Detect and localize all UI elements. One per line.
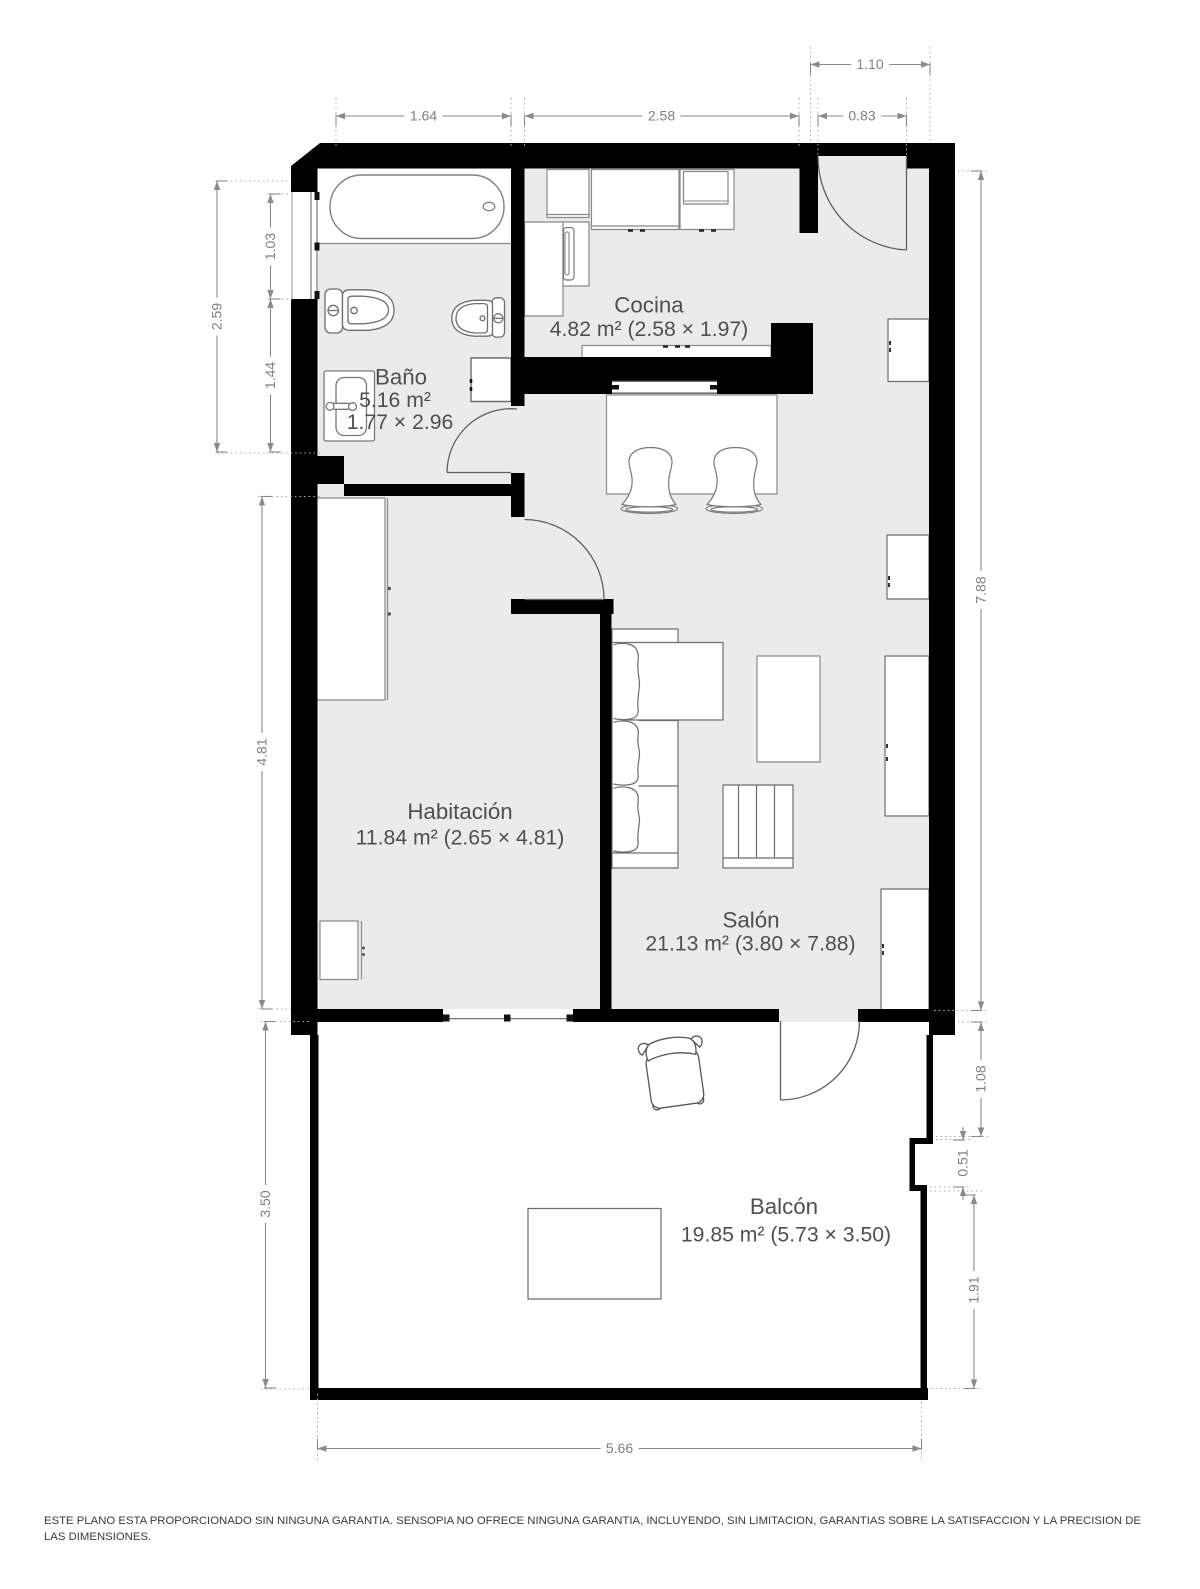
svg-text:2.59: 2.59 [209, 303, 225, 330]
svg-text:Balcón: Balcón [750, 1194, 818, 1219]
svg-text:0.83: 0.83 [848, 108, 875, 124]
svg-text:21.13 m² (3.80 × 7.88): 21.13 m² (3.80 × 7.88) [645, 933, 855, 956]
svg-text:Baño: Baño [375, 365, 427, 390]
svg-text:4.82 m² (2.58 × 1.97): 4.82 m² (2.58 × 1.97) [550, 318, 748, 341]
svg-text:19.85 m² (5.73 × 3.50): 19.85 m² (5.73 × 3.50) [681, 1224, 891, 1247]
svg-text:Cocina: Cocina [614, 293, 684, 318]
svg-text:3.50: 3.50 [257, 1190, 273, 1217]
svg-text:4.81: 4.81 [254, 738, 270, 765]
svg-text:1.64: 1.64 [410, 108, 437, 124]
svg-text:1.08: 1.08 [973, 1065, 989, 1092]
svg-text:11.84 m² (2.65 × 4.81): 11.84 m² (2.65 × 4.81) [356, 827, 565, 850]
svg-text:1.03: 1.03 [262, 233, 278, 260]
svg-text:1.77 × 2.96: 1.77 × 2.96 [347, 411, 454, 434]
svg-text:7.88: 7.88 [973, 576, 989, 603]
svg-text:5.16 m²: 5.16 m² [359, 389, 431, 412]
svg-text:0.51: 0.51 [955, 1149, 971, 1176]
svg-text:5.66: 5.66 [606, 1440, 633, 1456]
svg-text:Salón: Salón [722, 908, 779, 933]
svg-text:ESTE PLANO ESTA PROPORCIONADO: ESTE PLANO ESTA PROPORCIONADO SIN NINGUN… [44, 1515, 1141, 1527]
svg-text:1.10: 1.10 [856, 56, 883, 72]
svg-text:1.44: 1.44 [262, 362, 278, 389]
svg-text:1.91: 1.91 [966, 1276, 982, 1303]
svg-text:Habitación: Habitación [407, 799, 512, 824]
svg-text:2.58: 2.58 [648, 108, 675, 124]
svg-text:LAS DIMENSIONES.: LAS DIMENSIONES. [44, 1531, 151, 1543]
